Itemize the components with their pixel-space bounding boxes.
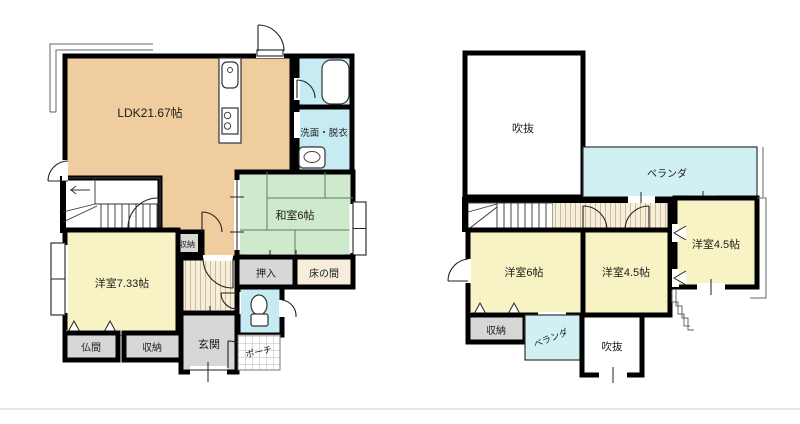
room-oshiire: 押入 (237, 257, 295, 287)
kitchen-counter (219, 58, 241, 143)
room-closet-bottom: 収納 (124, 333, 181, 360)
room-closet-bottom-label: 収納 (142, 341, 162, 354)
room-45-right: 洋室4.5帖 (672, 198, 757, 295)
room-butsuma: 仏間 (65, 333, 118, 360)
room-45-right-label: 洋室4.5帖 (692, 237, 740, 251)
room-youshitsu: 洋室7.33帖 (51, 230, 178, 335)
veranda-top: ベランダ (583, 147, 763, 197)
hallway (181, 255, 237, 320)
room-youshitsu-label: 洋室7.33帖 (95, 276, 149, 290)
veranda-top-label: ベランダ (647, 167, 687, 180)
room-closet-mid-label: 収納 (179, 239, 195, 249)
room-genkan-label: 玄関 (198, 337, 220, 351)
room-closet-2f: 収納 (468, 315, 525, 342)
room-void-bottom-label: 吹抜 (602, 340, 623, 353)
room-6jo-label: 洋室6帖 (504, 265, 543, 279)
top-door-arc (258, 25, 284, 51)
hallway-floor (181, 258, 237, 313)
washbasin-icon (299, 147, 325, 168)
room-washroom: 洗面・脱衣 (294, 107, 352, 172)
corridor-2f (553, 200, 671, 232)
floor2-plan: 吹抜 ベランダ (448, 53, 766, 383)
room6-window-arc (448, 259, 468, 281)
room-45-mid: 洋室4.5帖 (583, 230, 670, 315)
room-bathroom (294, 56, 352, 107)
room-void-bottom: 吹抜 (582, 315, 642, 383)
floorplan-drawing: LDK21.67帖 洗面・脱衣 (0, 0, 800, 424)
corridor-floor (553, 203, 667, 230)
stove-icon (222, 108, 238, 134)
porch: ポーチ (238, 335, 280, 370)
toilet-icon (251, 295, 267, 315)
room-toilet (235, 287, 296, 335)
bathtub-icon (322, 60, 349, 104)
stairs-1f (63, 176, 160, 233)
room-45-mid-label: 洋室4.5帖 (602, 265, 650, 279)
room-ldk-label: LDK21.67帖 (117, 105, 182, 120)
floor1-plan: LDK21.67帖 洗面・脱衣 (48, 25, 366, 382)
room-closet-2f-label: 収納 (486, 324, 506, 337)
stairs-arrow-icon (70, 186, 90, 194)
veranda-bottom: ベランダ (525, 315, 580, 360)
floorplan-page: LDK21.67帖 洗面・脱衣 (0, 0, 800, 424)
room-tokonoma: 床の間 (295, 257, 353, 287)
ldk-left-window (48, 160, 68, 181)
room-void-top-label: 吹抜 (512, 121, 534, 135)
room-void-top: 吹抜 (465, 53, 583, 197)
room-washitsu-label: 和室6帖 (275, 208, 314, 222)
kitchen-sink-icon (222, 62, 238, 88)
room-washroom-label: 洗面・脱衣 (300, 127, 348, 139)
room-oshiire-label: 押入 (256, 267, 276, 280)
room-butsuma-label: 仏間 (81, 342, 101, 354)
top-door (256, 25, 284, 58)
room-tokonoma-label: 床の間 (309, 267, 339, 280)
room-washitsu: 和室6帖 (230, 172, 366, 264)
